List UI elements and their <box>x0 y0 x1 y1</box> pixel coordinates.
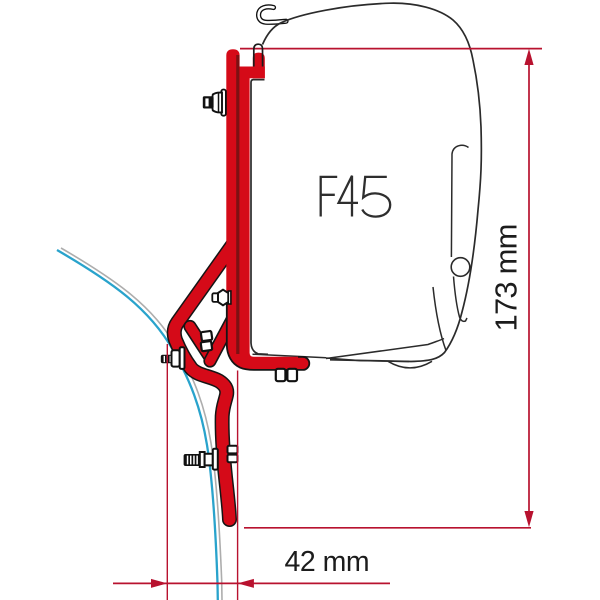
svg-text:42 mm: 42 mm <box>285 546 370 578</box>
svg-text:173 mm: 173 mm <box>489 224 524 331</box>
